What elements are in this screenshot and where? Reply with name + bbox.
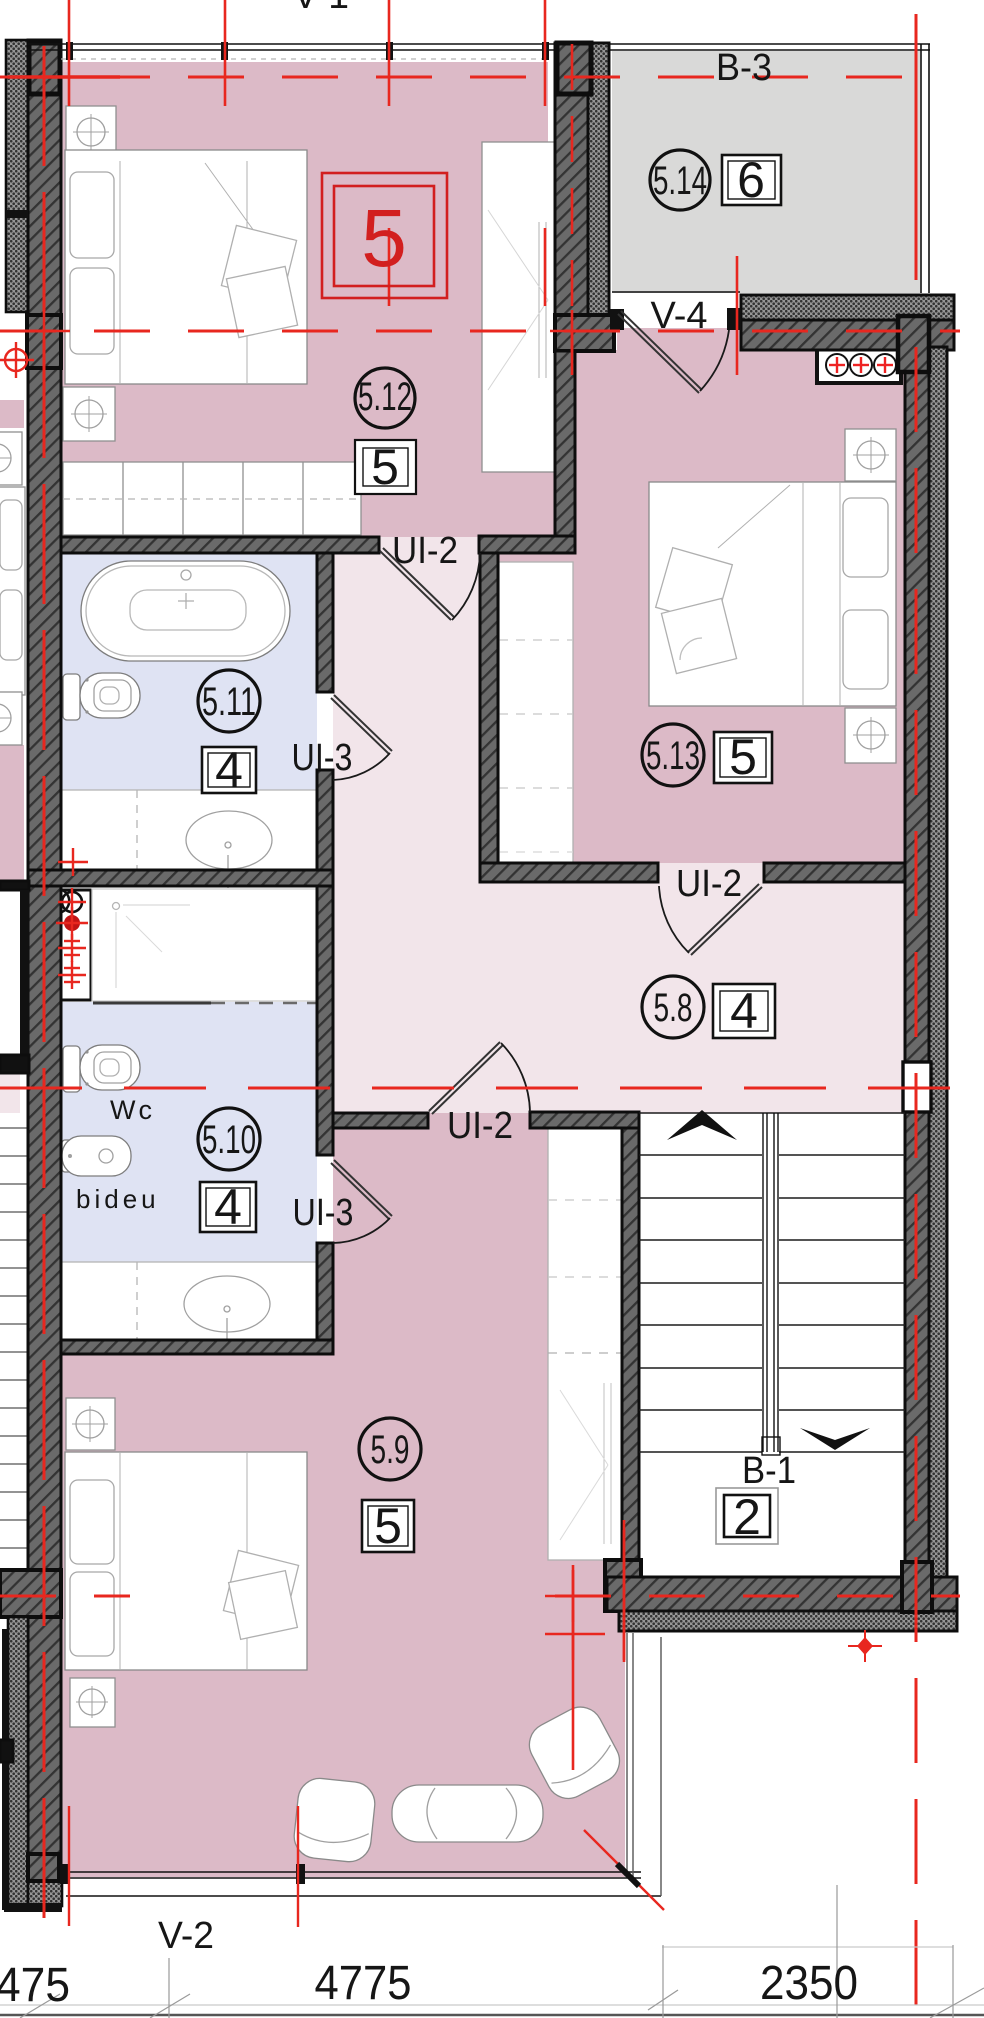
svg-text:5: 5: [361, 193, 407, 284]
svg-text:UI-3: UI-3: [292, 737, 353, 779]
svg-text:V-4: V-4: [651, 295, 708, 337]
svg-text:2: 2: [733, 1489, 761, 1545]
svg-text:5: 5: [371, 439, 399, 495]
svg-text:V-1: V-1: [293, 0, 349, 17]
svg-text:4: 4: [215, 742, 243, 798]
svg-text:B-3: B-3: [716, 47, 772, 89]
svg-text:4775: 4775: [315, 1957, 412, 2010]
svg-text:UI-2: UI-2: [392, 530, 458, 572]
svg-text:UI-2: UI-2: [676, 863, 742, 905]
svg-text:5: 5: [729, 729, 757, 785]
svg-text:5.13: 5.13: [646, 734, 700, 778]
svg-text:bideu: bideu: [76, 1184, 160, 1214]
svg-text:475: 475: [0, 1959, 70, 2012]
svg-text:2350: 2350: [760, 1957, 858, 2010]
svg-text:B-1: B-1: [742, 1450, 796, 1492]
svg-text:6: 6: [737, 152, 765, 208]
svg-text:5.9: 5.9: [371, 1428, 410, 1472]
svg-text:5.8: 5.8: [654, 986, 693, 1030]
svg-text:UI-3: UI-3: [293, 1192, 354, 1234]
svg-text:5.12: 5.12: [358, 375, 412, 419]
svg-text:4: 4: [214, 1179, 242, 1235]
svg-text:5.10: 5.10: [202, 1118, 256, 1162]
svg-text:5.14: 5.14: [653, 159, 707, 203]
svg-text:V-2: V-2: [158, 1915, 214, 1957]
svg-text:Wc: Wc: [110, 1095, 155, 1125]
svg-text:4: 4: [730, 983, 758, 1039]
svg-text:UI-2: UI-2: [447, 1105, 513, 1147]
svg-text:5.11: 5.11: [202, 680, 256, 724]
svg-text:5: 5: [374, 1498, 402, 1554]
